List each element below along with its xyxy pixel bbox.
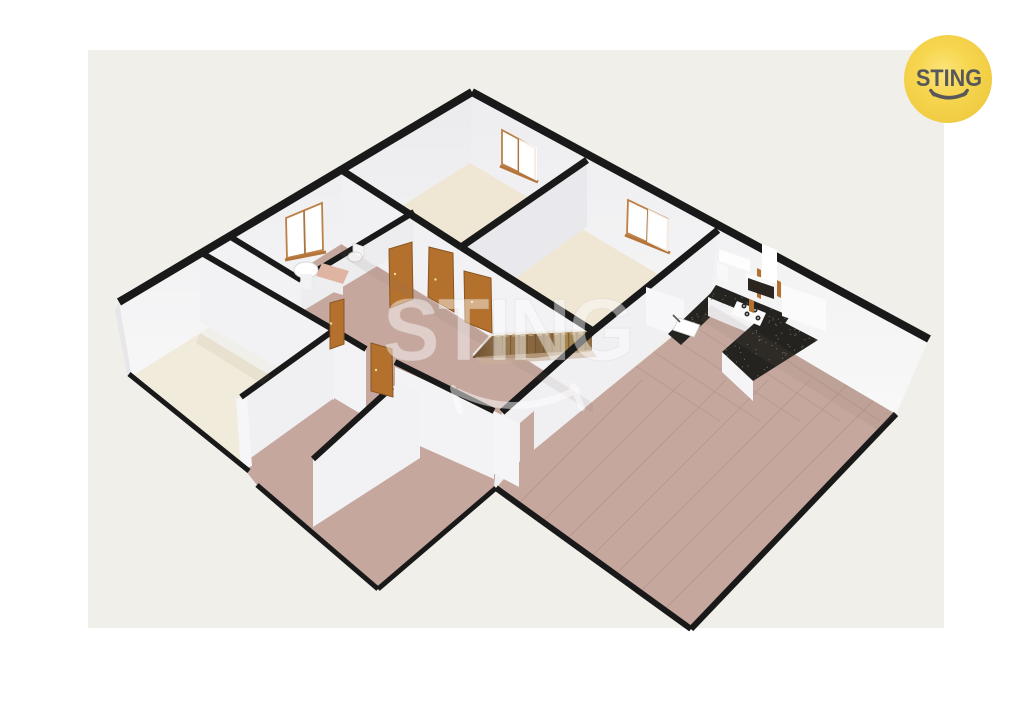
svg-text:STING: STING — [916, 65, 982, 92]
svg-text:STING: STING — [383, 280, 633, 379]
